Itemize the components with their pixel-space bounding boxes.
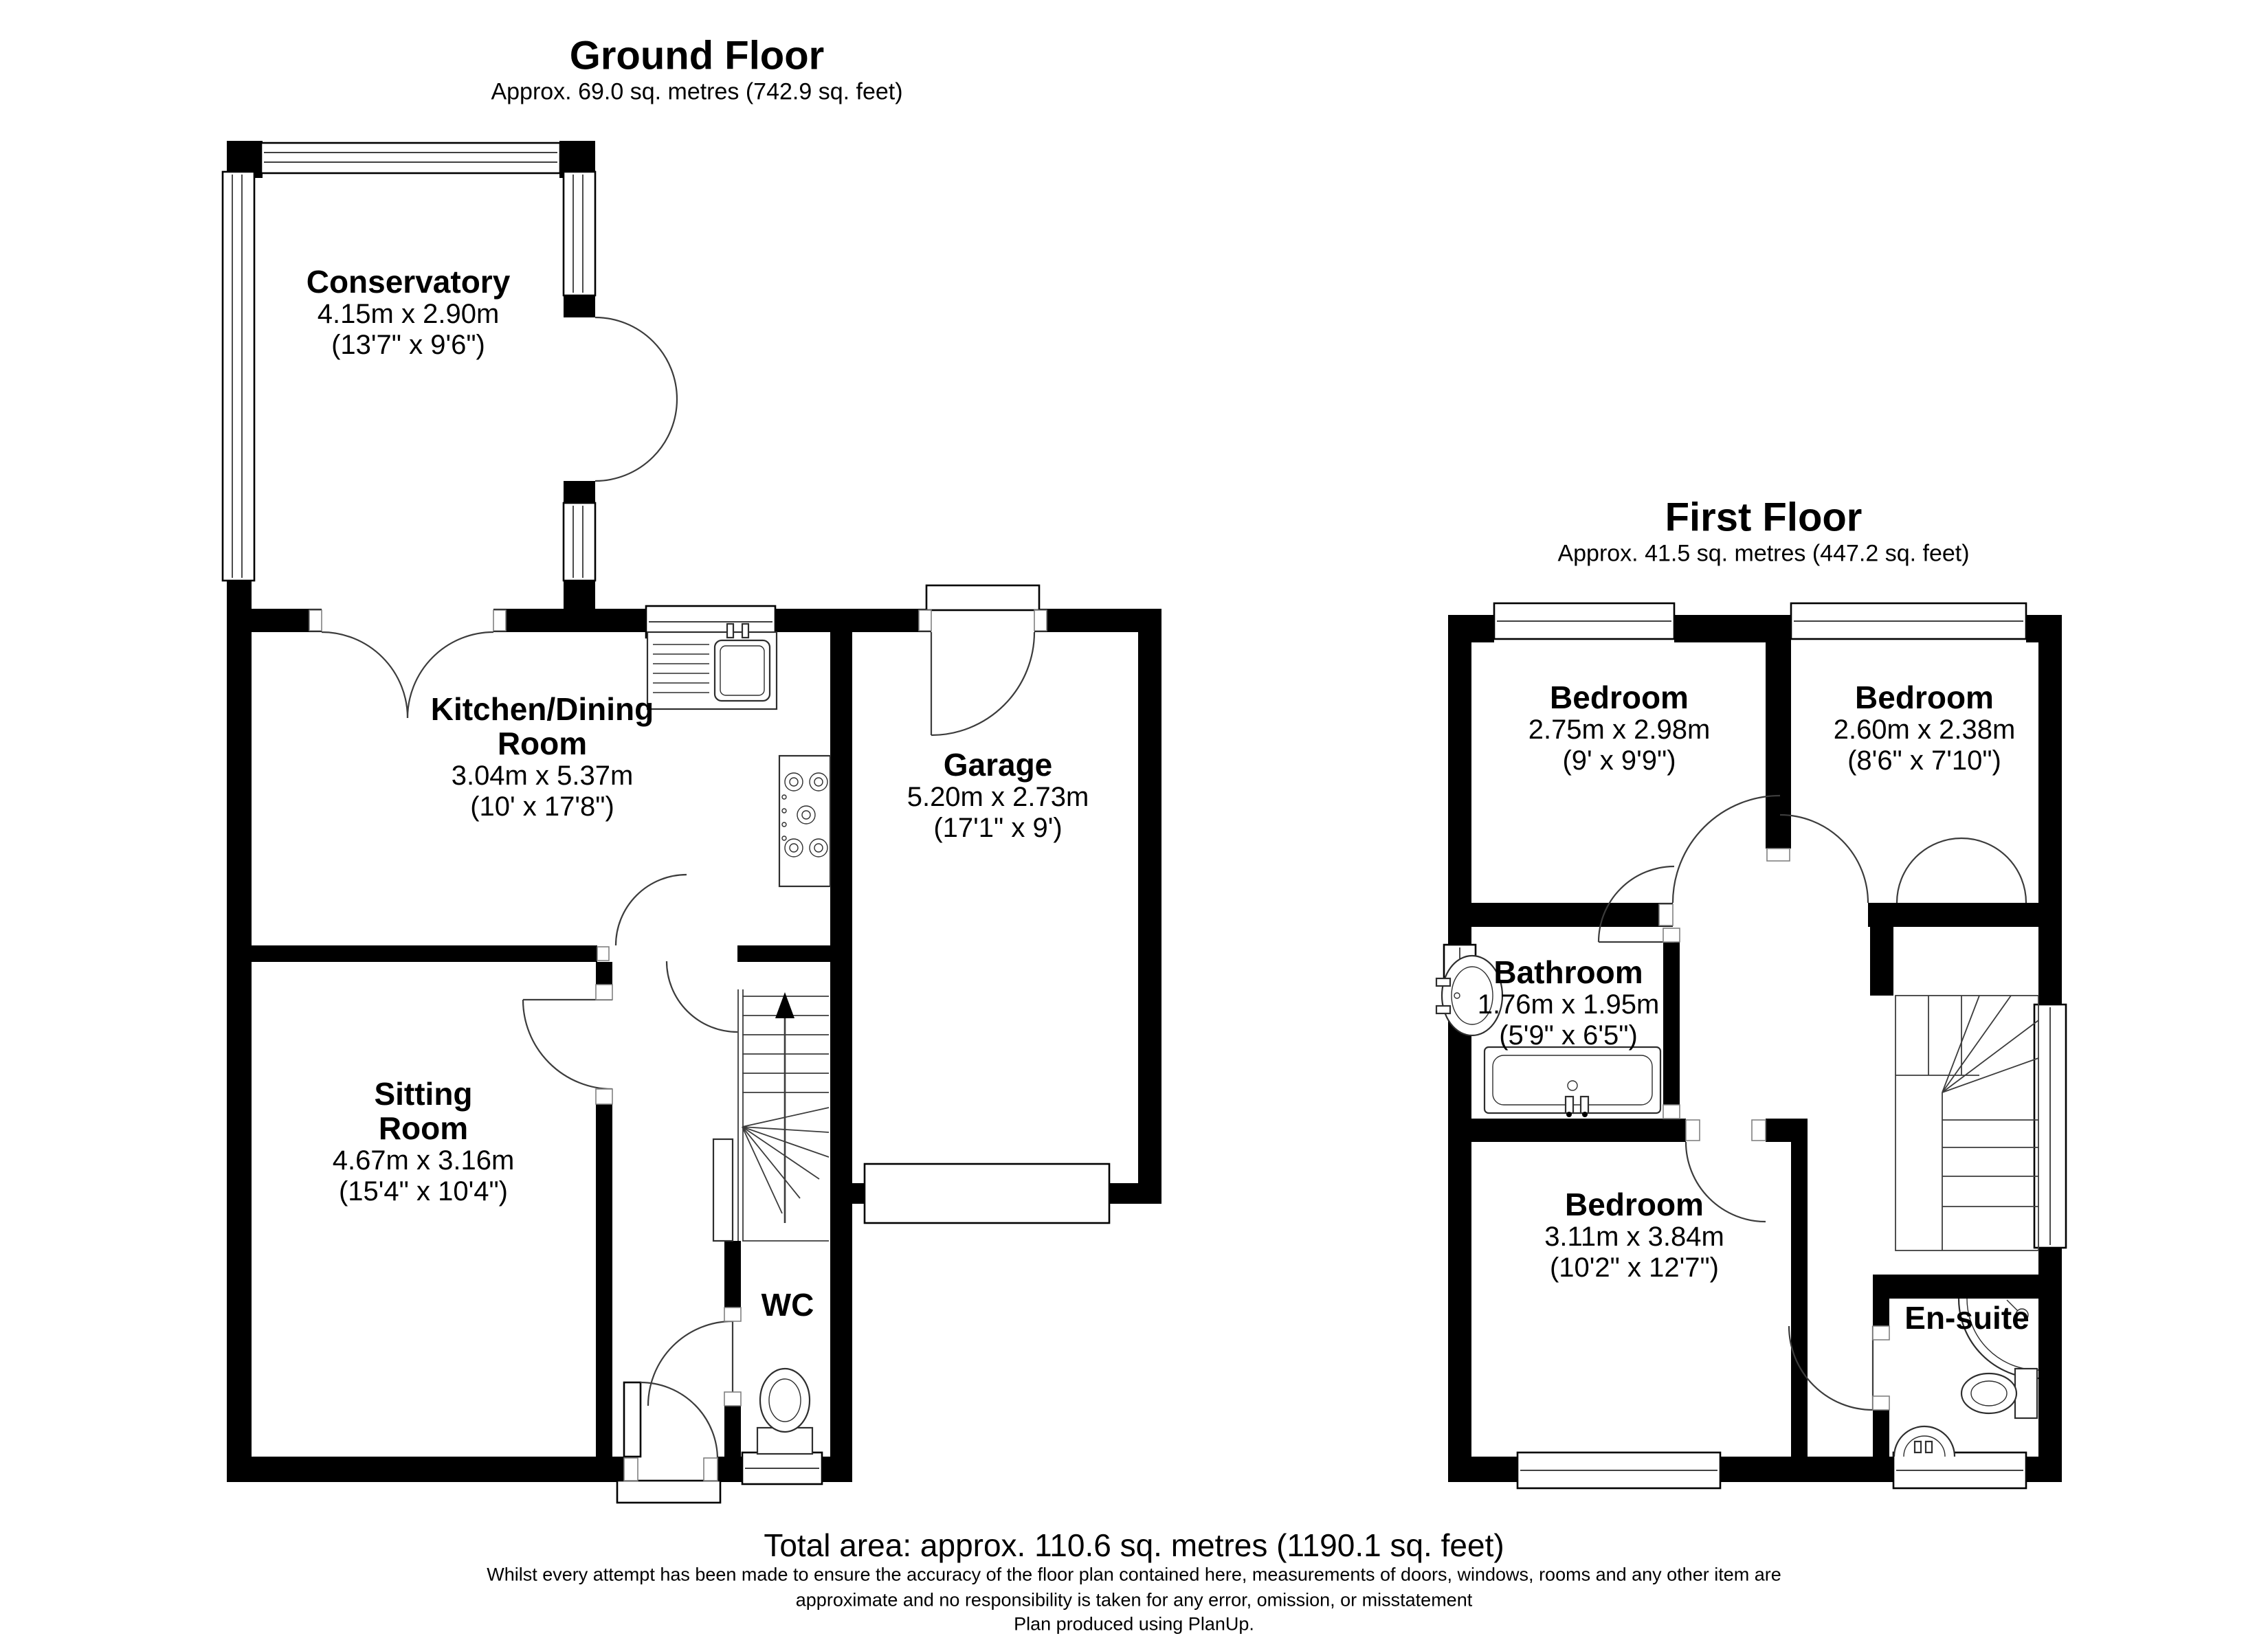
- total-area: Total area: approx. 110.6 sq. metres (11…: [764, 1529, 1504, 1563]
- bedroom2-wardrobe-doors: [1897, 838, 1961, 903]
- wc-door: [648, 1321, 733, 1406]
- conservatory-french-door: [595, 317, 677, 399]
- ensuite-sink: [1894, 1426, 1955, 1457]
- garage-main-door: [865, 1164, 1109, 1223]
- disclaimer-line-1: Whilst every attempt has been made to en…: [487, 1564, 1781, 1584]
- kitchen-hob: [779, 756, 830, 886]
- bedroom1-door: [1673, 796, 1780, 903]
- disclaimer-line-3: Plan produced using PlanUp.: [1014, 1614, 1254, 1634]
- sitting-room-label: Sitting Room 4.67m x 3.16m (15'4" x 10'4…: [331, 1077, 516, 1207]
- garage-side-door: [931, 632, 1034, 735]
- front-door-canopy: [617, 1481, 720, 1503]
- kitchen-label: Kitchen/Dining Room 3.04m x 5.37m (10' x…: [394, 692, 690, 822]
- first-stairs: [1895, 996, 2038, 1250]
- conservatory-right-lower-window: [564, 503, 595, 581]
- first-floor-area: Approx. 41.5 sq. metres (447.2 sq. feet): [1557, 541, 1969, 567]
- conservatory-top-window: [261, 143, 560, 173]
- floorplan-page: Ground Floor Approx. 69.0 sq. metres (74…: [0, 0, 2268, 1649]
- ground-stairs: [713, 989, 829, 1241]
- bedroom3-label: Bedroom 3.11m x 3.84m (10'2" x 12'7"): [1511, 1187, 1758, 1283]
- wc-label: WC: [761, 1288, 814, 1322]
- conservatory-left-window: [223, 172, 254, 581]
- garage-side-door-canopy: [926, 585, 1039, 610]
- bedroom1-label: Bedroom 2.75m x 2.98m (9' x 9'9"): [1509, 680, 1729, 776]
- kitchen-sink-bowl: [715, 640, 770, 701]
- understairs-cupboard: [713, 1139, 733, 1241]
- front-door-leaf: [624, 1382, 641, 1457]
- first-floor-title: First Floor: [1665, 497, 1863, 540]
- ground-doors: [309, 317, 1047, 1503]
- conservatory-label: Conservatory 4.15m x 2.90m (13'7" x 9'6"…: [257, 265, 559, 361]
- conservatory-right-upper-window: [564, 172, 595, 295]
- bathroom-label: Bathroom 1.76m x 1.95m (5'9" x 6'5"): [1445, 955, 1692, 1051]
- front-door: [641, 1382, 718, 1459]
- garage-label: Garage 5.20m x 2.73m (17'1" x 9'): [860, 748, 1135, 844]
- ground-floor-title: Ground Floor: [570, 35, 825, 78]
- bedroom2-door: [1780, 815, 1868, 903]
- ensuite-toilet-bowl: [1961, 1373, 2016, 1413]
- bedroom2-label: Bedroom 2.60m x 2.38m (8'6" x 7'10"): [1814, 680, 2034, 776]
- ground-floor-area: Approx. 69.0 sq. metres (742.9 sq. feet): [491, 80, 902, 105]
- kitchen-hall-door: [616, 875, 687, 945]
- wc-toilet-bowl: [760, 1369, 810, 1432]
- ensuite-toilet-cistern: [2015, 1369, 2037, 1418]
- sitting-room-door: [523, 1000, 612, 1089]
- disclaimer-line-2: approximate and no responsibility is tak…: [796, 1590, 1472, 1610]
- ensuite-label: En-suite: [1904, 1301, 2029, 1335]
